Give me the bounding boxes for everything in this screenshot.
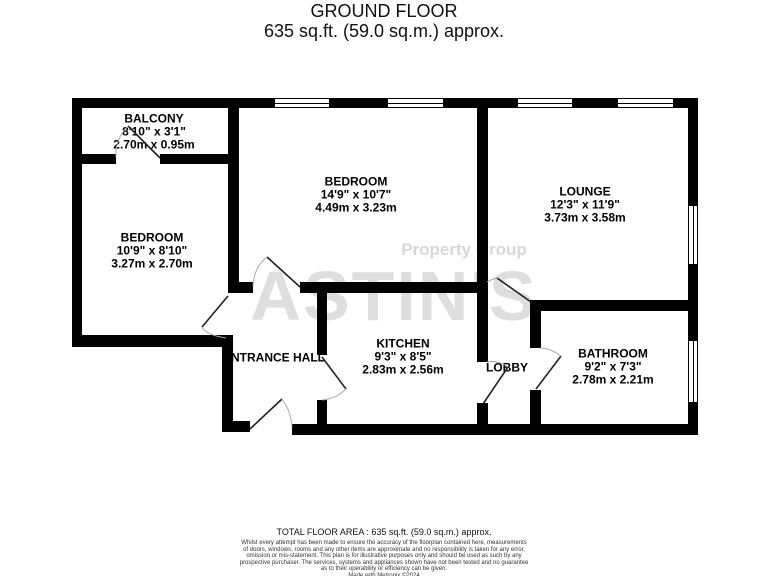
room-dims-metric: 3.73m x 3.58m <box>544 212 625 225</box>
room-dims-metric: 2.70m x 0.95m <box>113 139 194 152</box>
kitchen-door-icon <box>322 357 346 400</box>
bedroom1-door-icon <box>202 296 228 338</box>
wall-bedroom2-bottom <box>300 282 477 293</box>
window <box>617 98 674 108</box>
footer: TOTAL FLOOR AREA : 635 sq.ft. (59.0 sq.m… <box>0 527 768 576</box>
wall-left-exterior <box>72 98 82 347</box>
wall-kitchen-left-upper <box>317 293 327 355</box>
window <box>517 98 573 108</box>
entrance-hall-label: ENTRANCE HALL <box>223 352 325 365</box>
disclaimer-line: Whilst every attempt has been made to en… <box>0 540 768 547</box>
window <box>688 205 698 265</box>
bedroom2-label: BEDROOM 14'9" x 10'7" 4.49m x 3.23m <box>315 176 396 215</box>
wall-balcony-bottom <box>82 154 116 164</box>
bathroom-door-icon <box>536 348 561 389</box>
wall-lobby-divider-lower <box>477 403 488 424</box>
kitchen-label: KITCHEN 9'3" x 8'5" 2.83m x 2.56m <box>362 338 443 377</box>
wall-bedroom-divider <box>228 108 239 293</box>
total-floor-area: TOTAL FLOOR AREA : 635 sq.ft. (59.0 sq.m… <box>0 527 768 538</box>
title-floor-area: 635 sq.ft. (59.0 sq.m.) approx. <box>0 21 768 41</box>
room-dims-metric: 2.83m x 2.56m <box>362 364 443 377</box>
balcony-label: BALCONY 8'10" x 3'1" 2.70m x 0.95m <box>113 113 194 152</box>
window <box>387 98 444 108</box>
wall-hall-west <box>222 347 233 432</box>
room-dims-metric: 4.49m x 3.23m <box>315 202 396 215</box>
wall-top-segment <box>573 98 617 108</box>
wall-lounge-divider <box>477 98 488 362</box>
disclaimer-line: of doors, windows, rooms and any other i… <box>0 547 768 554</box>
bedroom1-label: BEDROOM 10'9" x 8'10" 3.27m x 2.70m <box>111 232 192 271</box>
wall-hall-foot <box>222 421 250 432</box>
wall-bottom-exterior <box>292 424 698 435</box>
wall-bedroom1-bottom <box>72 335 233 347</box>
window <box>688 340 698 403</box>
disclaimer-line: prospective purchaser. The services, sys… <box>0 560 768 567</box>
room-dims-metric: 3.27m x 2.70m <box>111 258 192 271</box>
window <box>274 98 330 108</box>
front-door-icon <box>250 399 292 429</box>
page-title: GROUND FLOOR 635 sq.ft. (59.0 sq.m.) app… <box>0 1 768 41</box>
wall-bathroom-left-lower <box>530 390 541 424</box>
wall-top-segment <box>72 98 274 108</box>
lounge-label: LOUNGE 12'3" x 11'9" 3.73m x 3.58m <box>544 186 625 225</box>
wall-bedroom-divider-foot <box>228 282 253 293</box>
title-floor-name: GROUND FLOOR <box>0 1 768 21</box>
floorplan-page: GROUND FLOOR 635 sq.ft. (59.0 sq.m.) app… <box>0 0 768 576</box>
disclaimer-line: as to their operability or efficiency ca… <box>0 566 768 573</box>
room-name: LOBBY <box>486 362 528 375</box>
wall-balcony-bottom <box>160 154 228 164</box>
wall-bathroom-left-upper <box>530 311 541 348</box>
lobby-label: LOBBY <box>486 362 528 375</box>
watermark-brand: ASTIN'S <box>250 256 537 336</box>
wall-top-segment <box>330 98 387 108</box>
bathroom-label: BATHROOM 9'2" x 7'3" 2.78m x 2.21m <box>572 348 653 387</box>
disclaimer-line: omission or mis-statement. This plan is … <box>0 553 768 560</box>
room-name: ENTRANCE HALL <box>223 352 325 365</box>
wall-bathroom-top <box>530 300 698 311</box>
room-dims-metric: 2.78m x 2.21m <box>572 374 653 387</box>
wall-kitchen-left-lower <box>317 400 327 424</box>
